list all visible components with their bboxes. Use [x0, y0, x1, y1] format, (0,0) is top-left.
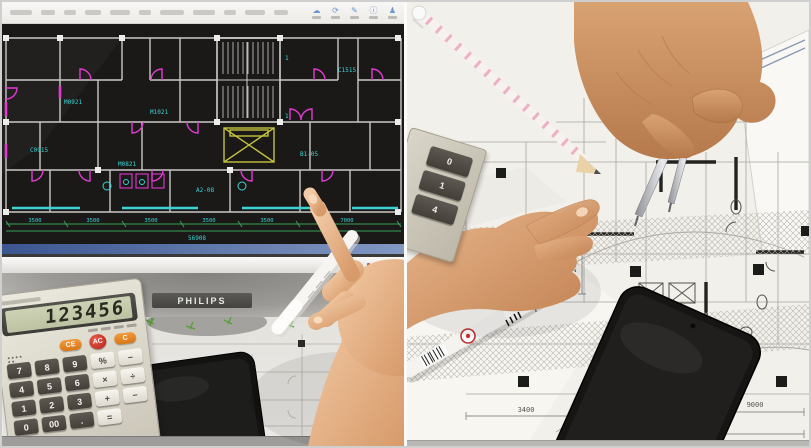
- calc-key: .: [69, 411, 95, 429]
- toolbar-item: [160, 10, 184, 15]
- calc-key: 4: [9, 380, 35, 398]
- svg-text:M1021: M1021: [150, 109, 168, 116]
- toolbar-item: [64, 10, 76, 15]
- toolbar-item: [139, 10, 151, 15]
- toolbar-item: [274, 10, 288, 15]
- calc-key: %: [90, 351, 116, 369]
- calc-key: =: [97, 408, 123, 426]
- toolbar-item: [41, 10, 55, 15]
- toolbar-item: [10, 10, 32, 15]
- info-icon: ⓘ: [369, 7, 378, 19]
- calc-key: −: [118, 348, 144, 366]
- calc-key: 9: [62, 355, 88, 373]
- calc-key: CE: [59, 338, 82, 352]
- calc-key: AC: [89, 333, 108, 350]
- calc-key: +: [94, 389, 120, 407]
- photo-composite: ☁ ⟳ ✎ ⓘ ♟: [0, 0, 811, 448]
- blueprint-scene: 3400 9000 30700 2000: [406, 2, 809, 446]
- total-dimension-label: 56908: [188, 235, 206, 242]
- calc-key: 8: [34, 358, 60, 376]
- toolbar-item: [85, 10, 101, 15]
- table-edge: [406, 440, 809, 446]
- svg-text:A2-08: A2-08: [196, 187, 214, 194]
- monitor-bezel: [2, 257, 405, 273]
- paper-plan-squares: [248, 340, 345, 403]
- calc-key: C: [114, 332, 137, 346]
- svg-text:M0821: M0821: [118, 161, 136, 168]
- user-icon: ♟: [388, 7, 397, 19]
- osd-buttons: [367, 263, 391, 266]
- calculator: 123456 CE AC C 7 8 9 % − 4 5 6 × ÷ 1: [2, 277, 162, 446]
- svg-text:3500: 3500: [260, 218, 273, 224]
- calc-key: 6: [64, 374, 90, 392]
- svg-text:1: 1: [285, 113, 289, 120]
- svg-text:1: 1: [285, 55, 289, 62]
- calc-key: 00: [41, 415, 67, 433]
- calc-key: −: [122, 386, 148, 404]
- cad-toolbar: ☁ ⟳ ✎ ⓘ ♟: [2, 2, 405, 24]
- calc-key: ×: [92, 370, 118, 388]
- calculator-keypad: 7 8 9 % − 4 5 6 × ÷ 1 2 3 + − 0 00 . =: [6, 348, 150, 436]
- calc-key: 2: [39, 396, 65, 414]
- calc-key: 0: [13, 418, 39, 436]
- toolbar-item: [245, 10, 265, 15]
- calc-key: ÷: [120, 367, 146, 385]
- calc-key: 3: [67, 392, 93, 410]
- dim-label: 3400: [518, 406, 535, 414]
- svg-text:3500: 3500: [202, 218, 215, 224]
- left-photo-monitor-scene: ☁ ⟳ ✎ ⓘ ♟: [2, 2, 405, 446]
- toolbar-item: [224, 10, 236, 15]
- calc-key: 7: [6, 362, 32, 380]
- monitor-stand-shadow: [147, 314, 267, 336]
- brand-badge: PHILIPS: [152, 293, 252, 308]
- calculator-display-value: 123456: [45, 297, 125, 329]
- calc-key: 5: [37, 377, 63, 395]
- screen-bottom-band: [2, 244, 405, 254]
- svg-text:7000: 7000: [340, 218, 353, 224]
- toolbar-item: [193, 10, 215, 15]
- svg-text:C1515: C1515: [338, 67, 356, 74]
- refresh-icon: ⟳: [331, 7, 340, 19]
- svg-text:C0915: C0915: [30, 147, 48, 154]
- pencil-eraser-cap: [412, 6, 426, 20]
- right-photo-blueprint-scene: 3400 9000 30700 2000: [406, 2, 809, 446]
- svg-text:M0921: M0921: [64, 99, 82, 106]
- dim-label: 9000: [747, 401, 764, 409]
- cad-canvas: M0921 M1021 C1515 C0915 M0821 B1-05 A2-0…: [2, 24, 405, 254]
- toolbar-item: [110, 10, 130, 15]
- desk-front-edge: [2, 436, 405, 446]
- svg-text:3500: 3500: [86, 218, 99, 224]
- svg-text:B1-05: B1-05: [300, 151, 318, 158]
- calc-key: 1: [11, 399, 37, 417]
- brand-label: PHILIPS: [177, 296, 226, 306]
- toolbar-icon-group: ☁ ⟳ ✎ ⓘ ♟: [312, 7, 397, 19]
- cloud-icon: ☁: [312, 7, 321, 19]
- svg-text:3500: 3500: [28, 218, 41, 224]
- svg-text:3500: 3500: [144, 218, 157, 224]
- pencil-icon: ✎: [350, 7, 359, 19]
- panel-divider: [404, 2, 407, 446]
